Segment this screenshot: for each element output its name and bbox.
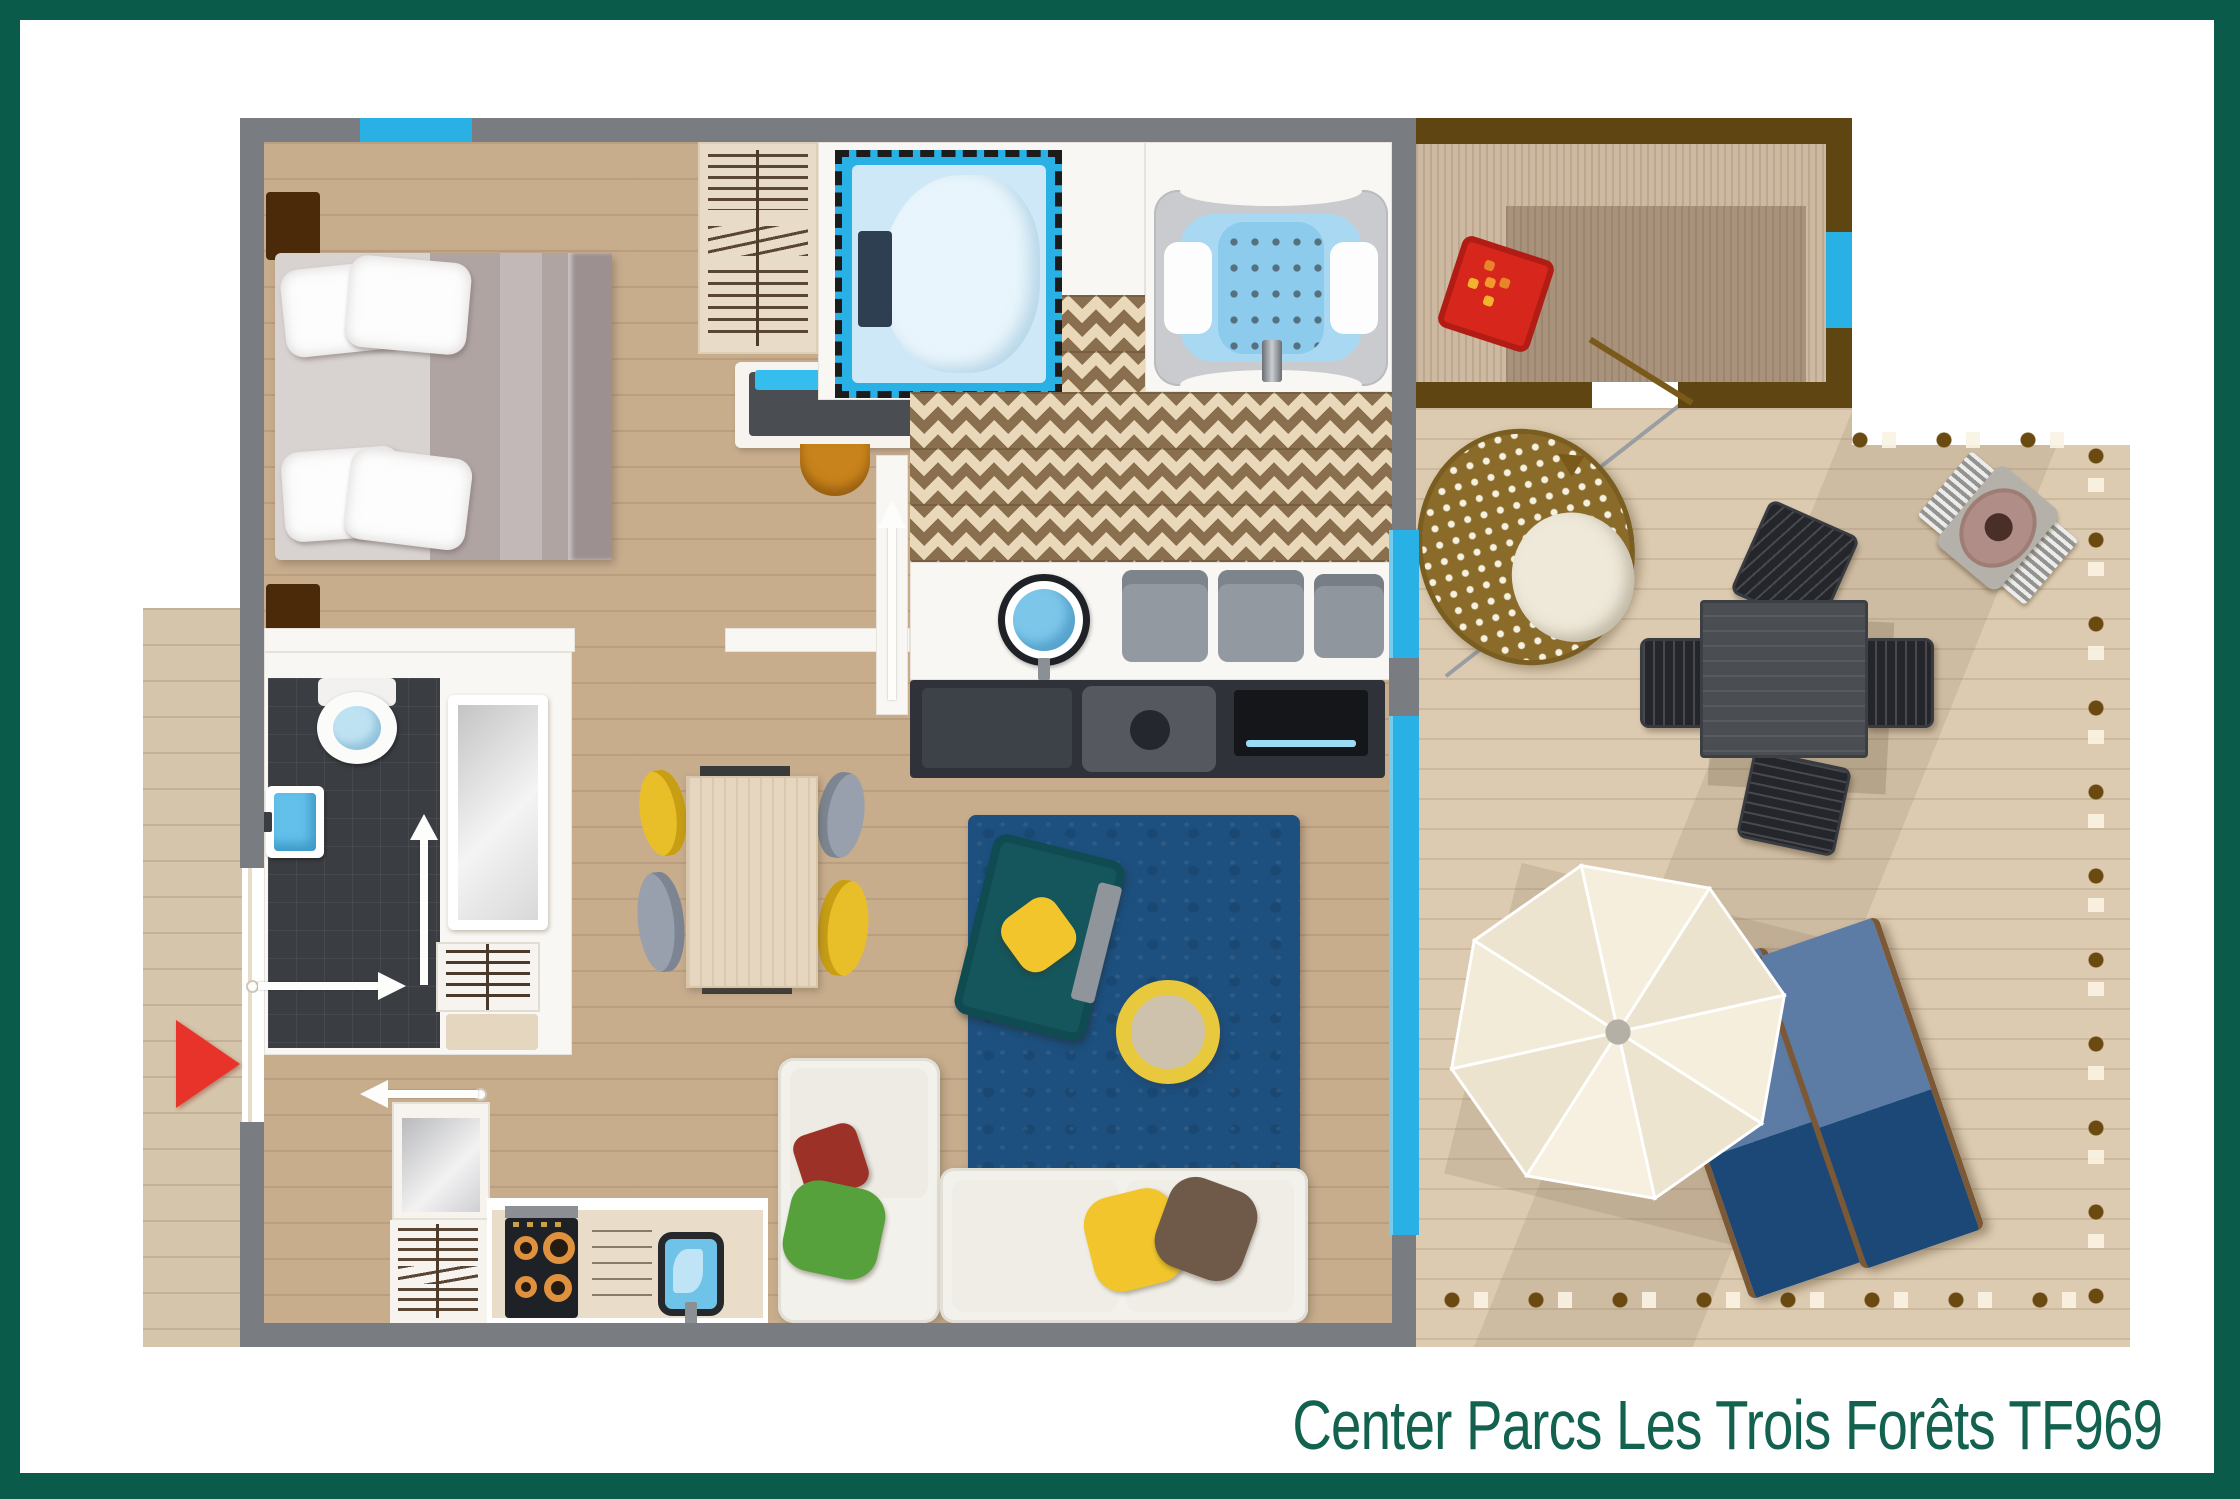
burner-icon xyxy=(544,1274,572,1302)
burner-icon xyxy=(543,1232,575,1264)
frame-bottom xyxy=(0,1473,2240,1499)
wall-left xyxy=(240,1122,264,1347)
tv-screen-line xyxy=(1246,740,1356,747)
bathtub-pillow xyxy=(1164,242,1212,334)
television xyxy=(1234,690,1368,756)
frame-left xyxy=(0,0,20,1499)
door-arrow xyxy=(386,1090,478,1098)
floorplan-canvas: Center Parcs Les Trois Forêts TF969 xyxy=(0,0,2240,1499)
side-deck xyxy=(143,608,242,1347)
single-bed-headboard xyxy=(858,231,892,327)
cooktop xyxy=(505,1218,578,1318)
wall-left xyxy=(240,118,264,868)
bed-blanket-band xyxy=(500,253,542,560)
door-arrow xyxy=(420,840,428,985)
wall-sink xyxy=(266,786,324,858)
shower xyxy=(448,695,548,930)
terrace-table xyxy=(1700,600,1868,758)
toilet xyxy=(316,678,398,766)
sliding-door xyxy=(1389,530,1419,1235)
frame-right xyxy=(2214,0,2240,1499)
window-top xyxy=(360,118,472,142)
wall-bedroom-south xyxy=(264,628,575,652)
bed-blanket-fold xyxy=(568,253,612,560)
bed-pillow xyxy=(343,254,473,356)
whirlpool-bathtub xyxy=(1154,190,1388,386)
vanity-sink xyxy=(998,574,1090,666)
vanity-faucet-icon xyxy=(1038,658,1050,680)
fridge xyxy=(392,1102,490,1220)
radiator xyxy=(436,942,540,1012)
entrance-arrow xyxy=(176,1020,240,1108)
nightstand xyxy=(266,192,320,260)
shed-wall-bottom xyxy=(1678,382,1826,408)
towel-stack xyxy=(1122,570,1208,662)
tv-unit xyxy=(910,680,1385,778)
single-bed-mat xyxy=(835,150,1062,398)
media-console xyxy=(1082,686,1216,772)
door-arrow-head xyxy=(360,1080,388,1108)
shed-wall-bottom xyxy=(1416,382,1592,408)
sliding-door-handle xyxy=(1389,658,1419,716)
entrance-door-line xyxy=(248,868,252,1122)
parasol xyxy=(1415,829,1820,1234)
frame-top xyxy=(0,0,2240,20)
terrace-border-bottom xyxy=(1444,1292,2104,1308)
shed-window xyxy=(1826,232,1852,328)
burner-icon xyxy=(515,1276,537,1298)
armchair-pillow xyxy=(994,890,1083,979)
bathtub-faucet-icon xyxy=(1262,340,1282,382)
door-arrow-head xyxy=(378,972,406,1000)
door-arrow xyxy=(258,982,380,990)
door-arrow-head xyxy=(878,500,906,528)
dishwasher xyxy=(592,1230,652,1308)
wall-bottom xyxy=(240,1323,1416,1347)
towel-stack xyxy=(1314,574,1384,658)
dining-table xyxy=(686,776,818,988)
bath-mat xyxy=(446,1014,538,1050)
shed-wall-top xyxy=(1416,118,1852,144)
dining-table-leg xyxy=(700,766,790,776)
bathtub-pillow xyxy=(1330,242,1378,334)
terrace-chair xyxy=(1862,638,1934,728)
burner-icon xyxy=(514,1236,538,1260)
pouf xyxy=(1116,980,1220,1084)
single-bed xyxy=(852,165,1046,383)
cooktop xyxy=(505,1206,578,1218)
shed-inner-shadow xyxy=(1506,206,1806,382)
terrace-border-right xyxy=(2088,448,2104,1308)
bed-pillow xyxy=(342,446,474,552)
door-arrow-head xyxy=(410,814,438,840)
page-title: Center Parcs Les Trois Forêts TF969 xyxy=(1292,1385,2162,1465)
vanity-counter xyxy=(910,562,1392,680)
double-bed xyxy=(275,253,612,560)
bathroom-floor xyxy=(910,392,1392,562)
door-arrow xyxy=(888,528,896,700)
wardrobe xyxy=(698,142,818,354)
drawer-unit xyxy=(390,1220,487,1323)
towel-stack xyxy=(1218,570,1304,662)
